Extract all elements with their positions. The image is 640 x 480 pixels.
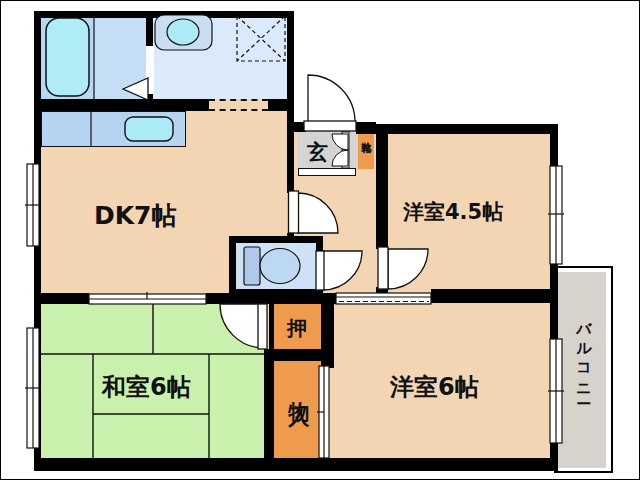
- western45-room-label: 洋室4.5帖: [403, 198, 503, 226]
- shoe-cabinet-box: [358, 131, 374, 169]
- wall-outer-top: [34, 11, 294, 18]
- wall-toilet-top: [229, 236, 323, 243]
- wall-outer-left: [34, 11, 41, 471]
- wall-closet-storage-divider: [274, 349, 321, 361]
- storage-box: [274, 361, 321, 458]
- western6-room-label: 洋室6帖: [390, 371, 479, 403]
- dk-room-label: DK7帖: [94, 199, 177, 232]
- washroom-dk-opening: [209, 99, 268, 111]
- wall-toilet-right-top: [316, 236, 323, 252]
- toilet-room-floor: [236, 243, 316, 289]
- wall-japanese-storage: [264, 349, 274, 459]
- wall-washroom-bottom-left: [34, 99, 209, 111]
- wall-washroom-right: [287, 11, 294, 193]
- wall-closet-left-line: [269, 304, 274, 349]
- floor-plan: DK7帖 洋室4.5帖 洋室6帖 和室6帖 玄 靴箱 押 物入 バルコニー: [0, 0, 640, 480]
- wall-top-western45: [376, 124, 558, 134]
- wall-entrance-stub-right: [356, 122, 376, 134]
- wall-bath-right-top: [146, 14, 153, 46]
- wall-toilet-left: [229, 236, 236, 296]
- wall-bath-right-bottom: [146, 94, 153, 101]
- entrance-step: [298, 168, 356, 176]
- japanese-room-label: 和室6帖: [102, 371, 191, 403]
- washroom-floor: [153, 14, 287, 101]
- wall-western45-left-corner: [376, 287, 388, 304]
- kitchen-counter: [41, 111, 186, 147]
- balcony-label: バルコニー: [574, 311, 593, 399]
- bathtub-side-floor: [38, 14, 94, 101]
- storage-label: 物入: [285, 384, 313, 392]
- wall-western45-western6: [431, 289, 558, 303]
- wall-dk-japanese-left: [34, 293, 89, 304]
- entrance-label: 玄: [307, 138, 328, 166]
- outdoor-notch: [294, 104, 558, 124]
- wall-entrance-stub-left: [294, 122, 306, 132]
- closet-label: 押: [287, 315, 307, 342]
- wall-western45-left: [376, 124, 388, 249]
- shoe-cabinet-label: 靴箱: [359, 134, 373, 136]
- wall-outer-bottom: [34, 458, 558, 471]
- wall-closet-right: [321, 293, 334, 368]
